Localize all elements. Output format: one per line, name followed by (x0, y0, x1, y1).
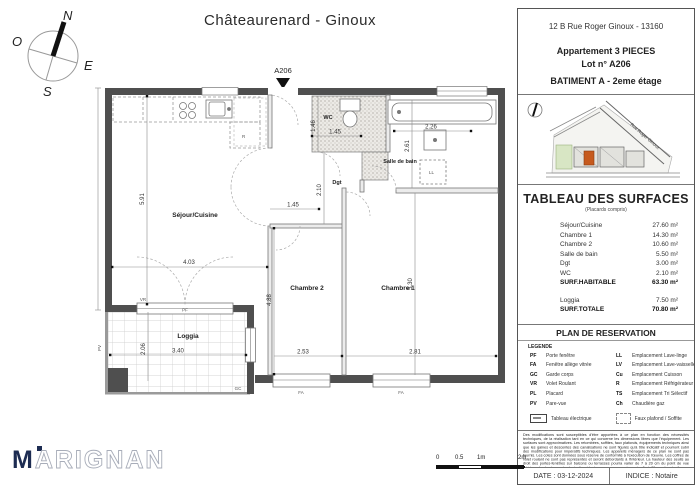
room-label-sdb: Salle de bain (383, 159, 417, 165)
legend-grid: PFPorte fenêtre LLEmplacement Lave-linge… (518, 352, 694, 410)
date-field: DATE : 03-12-2024 (518, 468, 610, 484)
lavelinge-tag: LL (429, 170, 435, 175)
surface-row: Séjour/Cuisine27.60 m² (518, 221, 694, 231)
right-panel: 12 B Rue Roger Ginoux - 13160 Appartemen… (517, 8, 695, 485)
reservation-title: PLAN DE RESERVATION (518, 325, 694, 341)
address: 12 B Rue Roger Ginoux - 13160 (518, 22, 694, 31)
surface-row: WC2.10 m² (518, 269, 694, 279)
svg-text:2.06: 2.06 (141, 343, 147, 355)
room-label-sejour: Séjour/Cuisine (172, 212, 218, 219)
tag-gc: GC (235, 386, 243, 391)
fridge-tag: R (242, 134, 246, 139)
compass-needle-icon (53, 22, 64, 56)
surface-row: Chambre 210.60 m² (518, 240, 694, 250)
indice-field: INDICE : Notaire (610, 468, 694, 484)
compass-n: N (63, 8, 73, 23)
surface-loggia-row: Loggia7.50 m² (518, 296, 694, 306)
building-floor: BATIMENT A - 2eme étage (518, 76, 694, 86)
false-ceiling-label: Faux plafond / Soffite (635, 416, 682, 422)
compass-rose: N O E S (8, 6, 96, 98)
svg-text:2.53: 2.53 (297, 350, 309, 356)
site-map-section: Rue Roger Ginoux (518, 95, 694, 186)
svg-text:2.10: 2.10 (317, 184, 323, 196)
lot-number: Lot n° A206 (518, 59, 694, 69)
svg-text:1.45: 1.45 (329, 130, 341, 136)
electrical-panel-label: Tableau électrique (551, 416, 592, 422)
svg-text:2.81: 2.81 (409, 350, 421, 356)
surfaces-title: TABLEAU DES SURFACES (518, 192, 694, 206)
unit-label: A206 (274, 66, 292, 75)
scale-bar: 0 0.5 1m 2m (436, 455, 531, 469)
unit-marker: A206 (274, 66, 292, 89)
room-label-loggia: Loggia (177, 333, 199, 340)
tag-pf: PF (182, 308, 188, 313)
svg-text:2.26: 2.26 (425, 125, 437, 131)
electrical-panel-icon (530, 414, 547, 423)
page: N O E S Châteaurenard - Ginoux A206 (0, 0, 700, 493)
tag-fa-2: FA (398, 390, 404, 395)
surface-total-row: SURF.TOTALE70.80 m² (518, 305, 694, 315)
false-ceiling-icon (616, 413, 631, 424)
reservation-section: PLAN DE RESERVATION LEGENDE PFPorte fenê… (518, 325, 694, 432)
svg-text:4.03: 4.03 (183, 260, 195, 266)
kitchen-fixtures: R (113, 97, 260, 148)
surfaces-section: TABLEAU DES SURFACES (Placards compris) … (518, 185, 694, 324)
tag-pv: PV (97, 345, 102, 351)
surface-row: Chambre 114.30 m² (518, 231, 694, 241)
surfaces-subtitle: (Placards compris) (518, 207, 694, 213)
page-title: Châteaurenard - Ginoux (150, 12, 430, 29)
apartment-type: Appartement 3 PIECES (518, 46, 694, 56)
room-label-dgt: Dgt (332, 180, 341, 186)
legend-icons-row: Tableau électrique Faux plafond / Soffit… (518, 409, 694, 424)
floor-plan: A206 (88, 56, 518, 410)
site-map: Rue Roger Ginoux (518, 95, 694, 185)
footer-section: DATE : 03-12-2024 INDICE : Notaire (518, 468, 694, 484)
room-label-chambre2: Chambre 2 (290, 285, 324, 292)
room-label-wc: WC (323, 115, 332, 121)
svg-text:4.88: 4.88 (267, 294, 273, 306)
room-label-chambre1: Chambre 1 (381, 285, 415, 292)
marignan-logo: MARIGNAN (12, 446, 166, 475)
highlighted-building (584, 151, 594, 165)
compass-o: O (12, 34, 22, 49)
compass-s: S (43, 84, 52, 98)
disclaimer-section: Des modifications sont susceptibles d'êt… (518, 431, 694, 468)
info-section: 12 B Rue Roger Ginoux - 13160 Appartemen… (518, 9, 694, 95)
svg-text:1.46: 1.46 (311, 120, 317, 132)
svg-text:1.45: 1.45 (287, 203, 299, 209)
surface-habitable-row: SURF.HABITABLE63.30 m² (518, 278, 694, 288)
legend-label: LEGENDE (518, 341, 694, 352)
svg-text:2.61: 2.61 (405, 140, 411, 152)
svg-text:3.40: 3.40 (172, 349, 184, 355)
tag-fa-1: FA (298, 390, 304, 395)
surface-row: Dgt3.00 m² (518, 259, 694, 269)
tag-vr: VR (140, 297, 147, 302)
svg-text:5.91: 5.91 (140, 193, 146, 205)
disclaimer-text: Des modifications sont susceptibles d'êt… (518, 431, 694, 468)
surface-row: Salle de bain5.50 m² (518, 250, 694, 260)
